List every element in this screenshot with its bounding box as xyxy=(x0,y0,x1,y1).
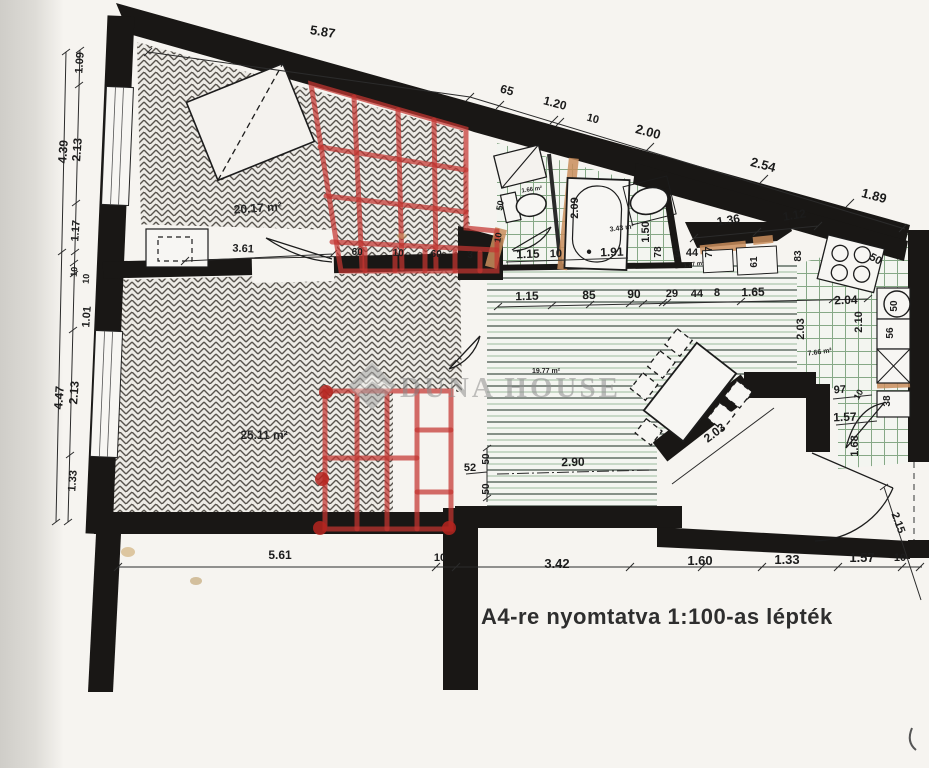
dimension-label: 1.09 xyxy=(73,52,86,74)
dimension-label: 2.09 xyxy=(569,197,581,218)
dimension-label: 1.50 xyxy=(640,221,652,242)
dimension-label: 2.90 xyxy=(561,455,585,469)
dimension-label: 2.13 xyxy=(69,137,85,162)
cabinet xyxy=(146,229,208,267)
dimension-label: 1.15 xyxy=(516,247,540,262)
floor-plan-drawing: 5.87651.20102.002.541.891.094.392.131.17… xyxy=(0,0,929,768)
window-top-left xyxy=(102,86,134,205)
dimension-label: 78 xyxy=(653,246,664,258)
dimension-label: 56 xyxy=(885,327,896,339)
dimension-label: 38 xyxy=(882,395,893,407)
scanned-floor-plan-page: 5.87651.20102.002.541.891.094.392.131.17… xyxy=(0,0,929,768)
dimension-label: 44 xyxy=(686,247,699,259)
dimension-label: 1.60 xyxy=(687,553,712,568)
stain-2 xyxy=(190,577,202,585)
dimension-label: 60 xyxy=(430,249,442,261)
dimension-label: 97 xyxy=(833,384,846,397)
dimension-label: 1.57 xyxy=(849,550,874,565)
dimension-label: 2.04 xyxy=(834,293,858,308)
dimension-label: 3 xyxy=(467,250,474,261)
dimension-label: 1.65 xyxy=(741,285,765,299)
dimension-label: 3.61 xyxy=(232,242,254,255)
dimension-label: 85 xyxy=(582,288,596,302)
dimension-label: 1.91 xyxy=(600,245,624,260)
dimension-label: 1.01 xyxy=(80,306,93,328)
dimension-label: 50 xyxy=(889,300,900,312)
dimension-label: 29 xyxy=(666,288,678,300)
dimension-label: 10 xyxy=(81,273,92,284)
dimension-label: 1.57 xyxy=(833,410,857,425)
dimension-label: 4.47 xyxy=(51,385,67,410)
middle-wall-stub xyxy=(443,508,478,690)
room-area-label: 25.11 m² xyxy=(240,428,287,442)
dimension-label: 90 xyxy=(627,287,641,301)
dimension-label: 10 xyxy=(550,248,563,260)
dimension-label: 10 xyxy=(69,266,80,277)
dimension-label: 1.33 xyxy=(774,552,799,567)
dimension-label: 60 xyxy=(351,247,363,259)
dimension-label: 1.33 xyxy=(66,470,79,492)
dimension-label: 50 xyxy=(481,453,492,465)
stain-1 xyxy=(121,547,135,557)
scan-edge-shadow xyxy=(0,0,64,768)
hall-side-wall xyxy=(806,384,830,452)
dimension-label: 3.42 xyxy=(544,556,569,571)
dimension-label: 5.61 xyxy=(268,548,292,562)
corridor-bottom-wall xyxy=(455,506,682,528)
dimension-label: 77 xyxy=(704,246,715,258)
right-wall-opening xyxy=(908,462,929,540)
dimension-label: 2.13 xyxy=(66,380,82,405)
dimension-label: 2.03 xyxy=(795,318,807,339)
dimension-label: 44 xyxy=(691,288,704,300)
dimension-label: 10 xyxy=(434,552,446,564)
dimension-label: 8 xyxy=(714,287,720,299)
dimension-label: 1.15 xyxy=(515,289,539,303)
stain-3 xyxy=(397,233,407,239)
scale-note: A4-re nyomtatva 1:100-as lépték xyxy=(481,604,833,629)
dimension-label: 3 xyxy=(674,248,680,260)
dimension-label: 10 xyxy=(392,248,404,260)
watermark-text: DUNA HOUSE xyxy=(400,372,621,404)
hall-top-wall xyxy=(744,372,816,398)
dimension-label: 1.17 xyxy=(69,220,82,242)
dimension-label: 83 xyxy=(793,250,804,262)
window-bottom-left xyxy=(90,330,122,457)
dimension-label: 52 xyxy=(464,462,476,474)
dimension-label: 61 xyxy=(749,256,760,268)
dimension-label: 2.10 xyxy=(853,311,865,332)
dimension-label: 50 xyxy=(481,483,492,495)
dimension-label: 10 xyxy=(492,232,504,244)
dimension-label: 50 xyxy=(494,200,506,212)
dimension-label: 10 xyxy=(894,552,906,564)
dimension-label: 1.68 xyxy=(849,435,861,456)
